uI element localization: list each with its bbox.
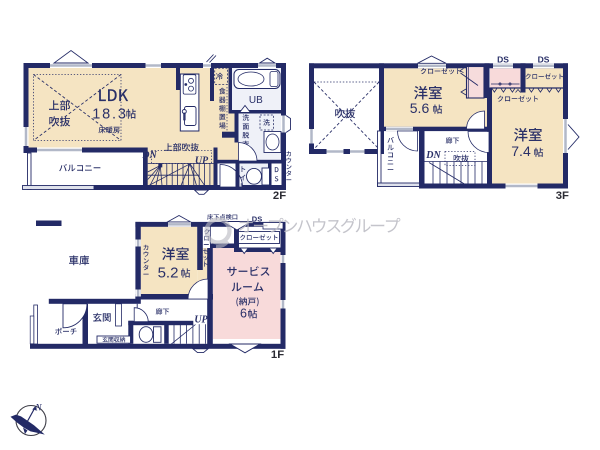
svg-text:UP: UP <box>195 156 209 167</box>
svg-text:5.6: 5.6 <box>410 100 430 116</box>
svg-text:5.2: 5.2 <box>158 265 179 282</box>
svg-text:UP: UP <box>194 315 208 326</box>
svg-text:N: N <box>34 404 42 414</box>
svg-text:1F: 1F <box>271 349 284 361</box>
svg-text:DN: DN <box>141 150 157 161</box>
svg-text:UB: UB <box>249 95 263 106</box>
svg-text:3F: 3F <box>556 190 569 202</box>
svg-text:18.3: 18.3 <box>92 106 127 122</box>
svg-text:DS: DS <box>538 54 550 64</box>
svg-text:DS: DS <box>497 54 509 64</box>
svg-text:7.4: 7.4 <box>511 143 531 159</box>
svg-text:DN: DN <box>425 150 441 161</box>
svg-text:6: 6 <box>240 306 247 320</box>
svg-text:2F: 2F <box>273 190 286 202</box>
svg-text:DS: DS <box>252 215 262 224</box>
